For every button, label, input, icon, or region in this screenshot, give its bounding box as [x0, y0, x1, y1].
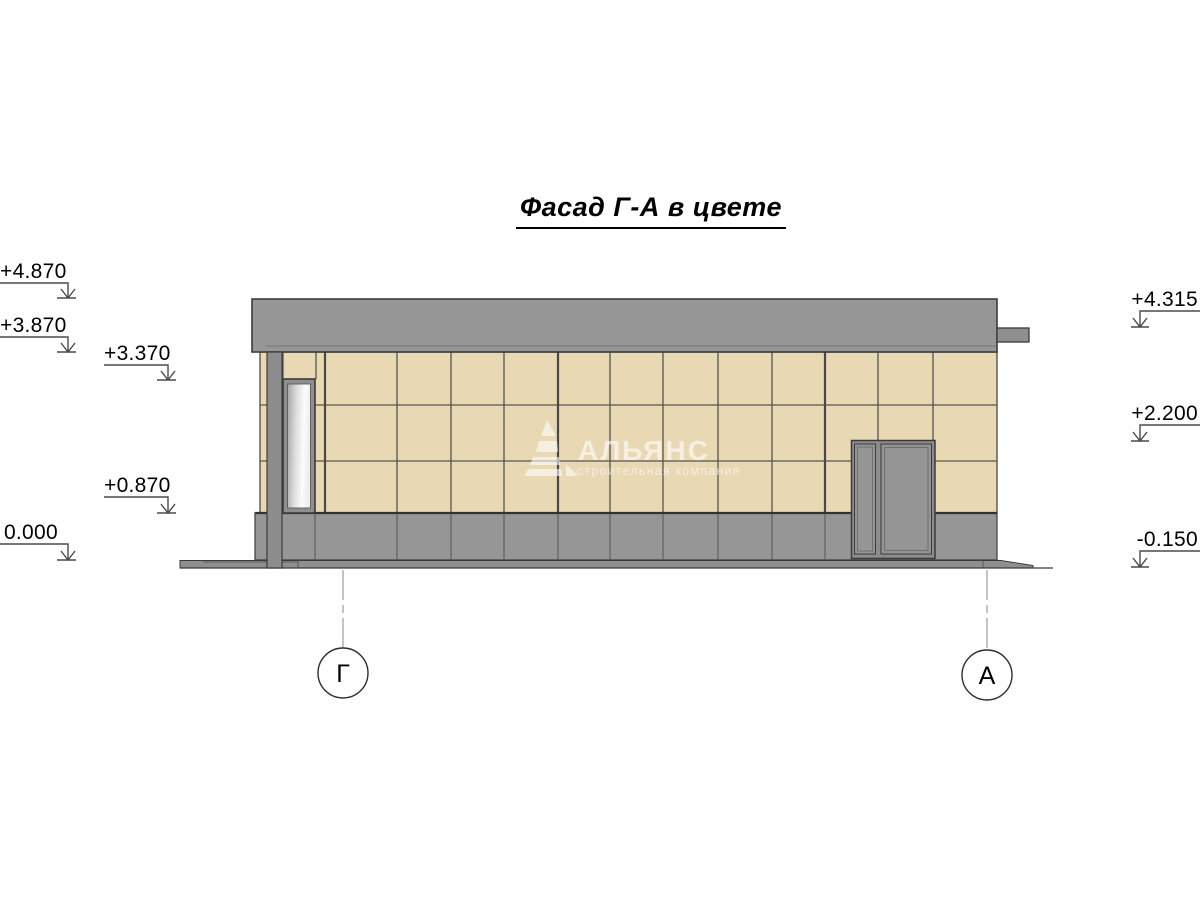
watermark-name: АЛЬЯНС	[578, 437, 710, 465]
elevation-value-left-3: +3.370	[104, 342, 170, 365]
facade-drawing-page: Фасад Г-А в цвете АЛЬЯНС строительная ко…	[0, 0, 1200, 900]
elevation-value-left-4: +0.870	[104, 474, 170, 497]
elevation-value-left-2: +3.870	[0, 314, 66, 337]
entrance-platform	[180, 561, 1033, 569]
axis-label-a: А	[967, 664, 1007, 689]
elevation-value-right-2: +2.200	[1128, 402, 1198, 425]
axis-label-g: Г	[323, 662, 363, 687]
elevation-value-right-1: +4.315	[1128, 288, 1198, 311]
entrance-door	[852, 441, 936, 559]
watermark-subtitle: строительная компания	[577, 465, 741, 478]
door-leaf-wide	[881, 444, 932, 554]
axis-leader-lines	[343, 570, 987, 650]
corner-pillar	[267, 352, 282, 568]
elevation-value-left-1: +4.870	[0, 260, 66, 283]
elevation-value-right-3: -0.150	[1128, 528, 1198, 551]
parapet	[252, 299, 997, 352]
elevation-value-left-5: 0.000	[0, 521, 58, 544]
wall-bracket	[997, 328, 1029, 342]
window-glass	[288, 384, 311, 508]
window	[283, 379, 315, 513]
drawing-title: Фасад Г-А в цвете	[516, 192, 786, 229]
